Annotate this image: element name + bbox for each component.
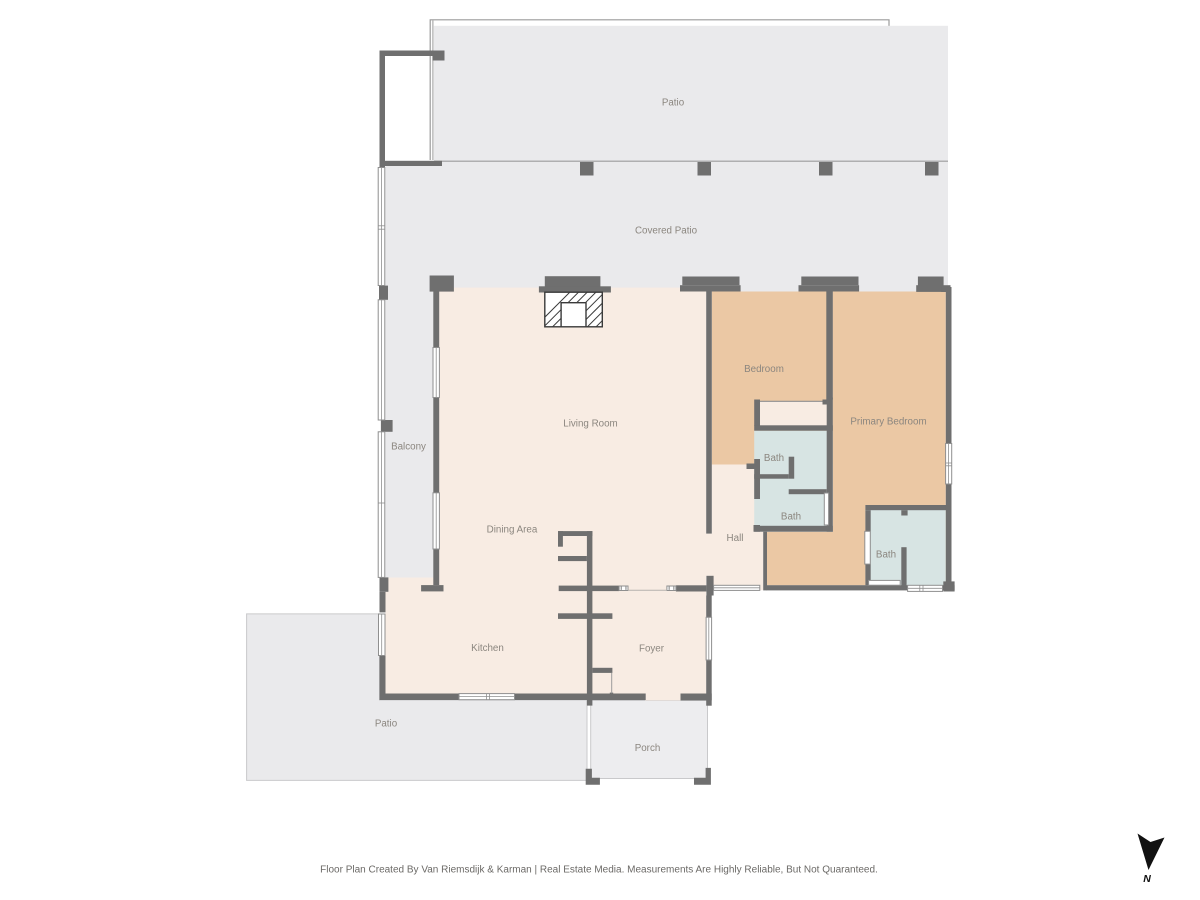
- svg-text:Hall: Hall: [727, 533, 744, 544]
- svg-text:Floor Plan Created By Van Riem: Floor Plan Created By Van Riemsdijk & Ka…: [320, 865, 878, 876]
- svg-text:Covered Patio: Covered Patio: [635, 226, 698, 237]
- svg-text:Bath: Bath: [781, 512, 801, 523]
- svg-text:Foyer: Foyer: [639, 644, 665, 655]
- svg-text:Balcony: Balcony: [391, 442, 426, 453]
- svg-text:Patio: Patio: [375, 719, 398, 730]
- svg-text:Bath: Bath: [764, 453, 784, 464]
- svg-text:Dining Area: Dining Area: [487, 525, 538, 536]
- svg-text:Primary Bedroom: Primary Bedroom: [850, 417, 926, 428]
- svg-text:N: N: [1143, 873, 1151, 885]
- svg-text:Patio: Patio: [662, 98, 685, 109]
- svg-text:Porch: Porch: [635, 743, 661, 754]
- svg-text:Bath: Bath: [876, 550, 896, 561]
- svg-text:Living Room: Living Room: [563, 419, 617, 430]
- svg-text:Kitchen: Kitchen: [471, 643, 504, 654]
- svg-text:Bedroom: Bedroom: [744, 364, 784, 375]
